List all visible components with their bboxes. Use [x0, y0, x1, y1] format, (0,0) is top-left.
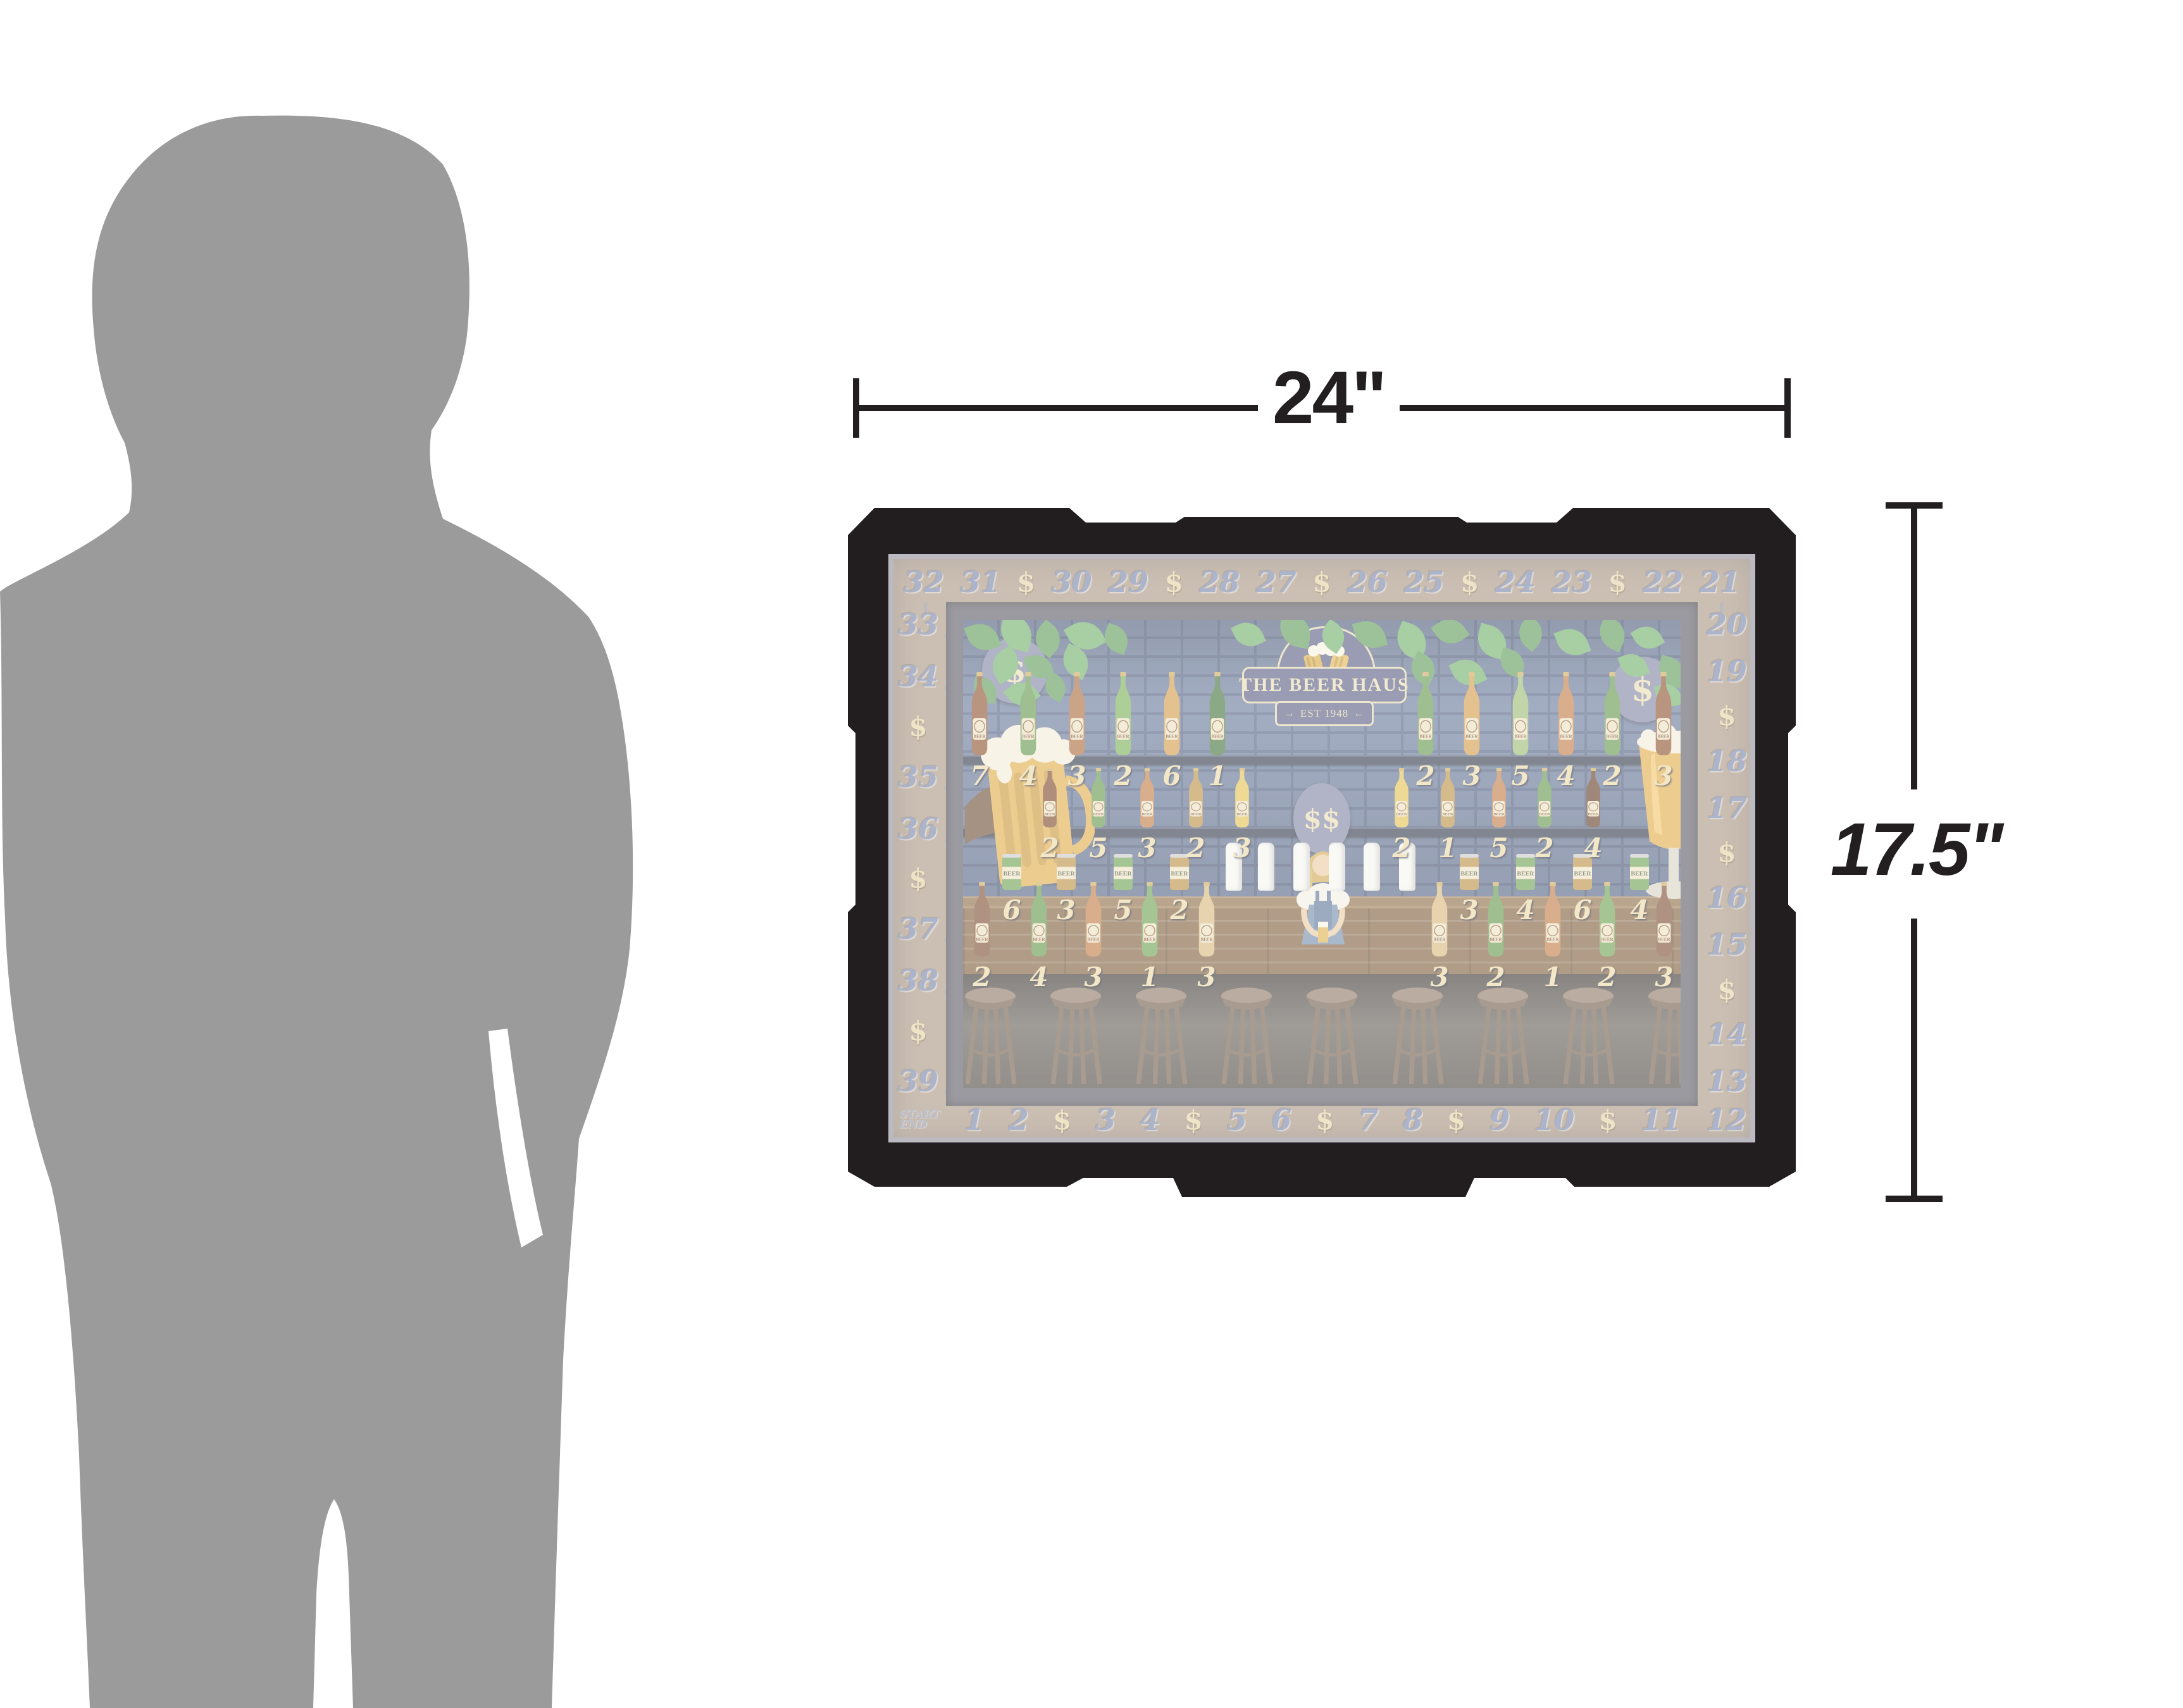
inner-bezel: $ $ $$ ♕ [946, 602, 1698, 1106]
track-right: 2019$1817$1615$1413 [1700, 607, 1754, 1098]
beer-count-number: 3 [1189, 962, 1224, 993]
beer-count-number: 5 [1481, 832, 1517, 863]
track-number-space: 21 [1700, 565, 1740, 599]
track-number-space: 33 [898, 607, 938, 641]
beer-bottle: BEER [1017, 672, 1039, 755]
beer-count-number: 1 [1430, 832, 1465, 863]
svg-text:BEER: BEER [1490, 938, 1502, 943]
beer-can: BEER [999, 854, 1024, 891]
beer-bottle: BEER [1510, 672, 1531, 755]
svg-text:BEER: BEER [1493, 813, 1505, 817]
track-number-space: 20 [1707, 607, 1747, 641]
track-number-space: 5 [1227, 1103, 1247, 1137]
dim-tick-bottom [1886, 1196, 1943, 1202]
white-beer-glass [1258, 843, 1274, 891]
track-number-space: 13 [1707, 1064, 1747, 1098]
beer-bottle: BEER [1485, 882, 1507, 956]
track-number-space: 28 [1199, 565, 1240, 599]
beer-count-number: 4 [1622, 894, 1657, 925]
svg-text:BEER: BEER [1114, 870, 1132, 877]
beer-count-number: 2 [1478, 962, 1514, 993]
arrow-right-icon: → [1284, 707, 1295, 720]
beer-bottle: BEER [1555, 672, 1577, 755]
svg-text:BEER: BEER [1143, 938, 1156, 943]
sign-title-band: THE BEER HAUS [1242, 667, 1407, 703]
beer-count-number: 7 [963, 760, 997, 791]
track-number-space: 14 [1707, 1017, 1747, 1051]
beer-count-number: 5 [1081, 832, 1116, 863]
svg-text:BEER: BEER [1465, 733, 1478, 739]
dim-line-bottom-segment [1911, 919, 1917, 1199]
beer-bottle: BEER [1161, 672, 1183, 755]
track-number-space: 16 [1707, 881, 1747, 915]
beer-haus-game-board: 3231$3029$2827$2625$2423$2221 STARTEND12… [848, 508, 1796, 1199]
beer-bottle: BEER [1083, 882, 1104, 956]
bar-stool [1639, 986, 1681, 1086]
svg-text:BEER: BEER [1546, 938, 1559, 943]
svg-text:BEER: BEER [973, 733, 986, 739]
beer-count-number: 6 [1154, 760, 1190, 791]
svg-text:BEER: BEER [1141, 813, 1153, 817]
beer-can: BEER [1627, 854, 1652, 891]
beer-count-number: 3 [1646, 760, 1681, 791]
beer-count-number: 2 [1032, 832, 1067, 863]
beer-count-number: 3 [1059, 760, 1095, 791]
track-number-space: 30 [1052, 565, 1092, 599]
svg-text:BEER: BEER [1087, 938, 1100, 943]
svg-text:BEER: BEER [1433, 938, 1446, 943]
beer-count-number: 3 [1452, 894, 1487, 925]
track-left: 3334$3536$3738$39 [891, 607, 945, 1098]
track-number-space: 32 [904, 565, 944, 599]
beer-count-number: 1 [1200, 760, 1235, 791]
svg-text:BEER: BEER [1033, 938, 1045, 943]
svg-text:BEER: BEER [1236, 813, 1248, 817]
track-number-space: 12 [1706, 1103, 1746, 1137]
bar-stool [963, 986, 1024, 1086]
beer-bottle: BEER [1112, 672, 1134, 755]
beer-count-number: 4 [1011, 760, 1046, 791]
track-cash-space: $ [1460, 567, 1479, 598]
svg-text:BEER: BEER [1057, 870, 1075, 877]
beer-count-number: 2 [1178, 832, 1214, 863]
beer-count-number: 3 [1224, 832, 1260, 863]
svg-text:BEER: BEER [1190, 813, 1202, 817]
white-beer-glass [1293, 843, 1310, 891]
svg-text:BEER: BEER [1166, 733, 1178, 739]
track-number-space: 27 [1256, 565, 1297, 599]
beer-bottle: BEER [1233, 768, 1252, 827]
track-top: 3231$3029$2827$2625$2423$2221 [904, 559, 1740, 605]
track-number-space: 11 [1641, 1103, 1682, 1137]
beer-count-number: 5 [1503, 760, 1538, 791]
track-start-end-space: STARTEND [900, 1110, 940, 1130]
dim-tick-right [1784, 378, 1791, 438]
dim-tick-top [1886, 502, 1943, 509]
beer-bottle: BEER [1207, 672, 1228, 755]
svg-text:BEER: BEER [1588, 813, 1599, 817]
track-number-space: 19 [1707, 654, 1747, 688]
beer-bottle: BEER [1066, 672, 1088, 755]
beer-count-number: 5 [1105, 894, 1141, 925]
track-number-space: 22 [1643, 565, 1683, 599]
svg-text:BEER: BEER [1560, 733, 1572, 739]
svg-text:BEER: BEER [1517, 870, 1534, 877]
track-number-space: 23 [1552, 565, 1592, 599]
height-label: 17.5" [1815, 812, 2017, 887]
svg-text:BEER: BEER [1396, 813, 1407, 817]
track-cash-space: $ [1315, 1105, 1334, 1136]
beer-count-number: 6 [994, 894, 1029, 925]
bar-stool [1554, 986, 1622, 1086]
track-number-space: 37 [898, 912, 938, 946]
person-silhouette [0, 0, 823, 1708]
bar-stool [1127, 986, 1195, 1086]
track-number-space: 34 [898, 659, 938, 693]
beer-count-number: 3 [1048, 894, 1084, 925]
beer-count-number: 3 [1129, 832, 1165, 863]
track-cash-space: $ [909, 711, 927, 742]
svg-text:BEER: BEER [1071, 733, 1083, 739]
track-cash-space: $ [1608, 567, 1627, 598]
beer-count-number: 3 [1454, 760, 1490, 791]
track-number-space: 29 [1108, 565, 1148, 599]
beer-count-number: 4 [1021, 962, 1057, 993]
arrow-left-icon: ← [1353, 707, 1365, 720]
svg-text:BEER: BEER [1657, 733, 1670, 739]
bar-stool [1469, 986, 1537, 1086]
svg-text:BEER: BEER [1601, 938, 1614, 943]
track-number-space: 24 [1495, 565, 1536, 599]
track-cash-space: $ [1717, 700, 1736, 731]
svg-text:BEER: BEER [1171, 870, 1188, 877]
track-number-space: 9 [1490, 1103, 1510, 1137]
svg-text:BEER: BEER [1631, 870, 1648, 877]
beer-bottle: BEER [1601, 672, 1623, 755]
beer-count-number: 2 [1595, 760, 1630, 791]
track-number-space: 4 [1140, 1103, 1160, 1137]
track-cash-space: $ [1185, 1105, 1203, 1136]
svg-text:BEER: BEER [1514, 733, 1527, 739]
track-number-space: 18 [1707, 744, 1747, 778]
track-cash-space: $ [909, 863, 927, 894]
beer-count-number: 1 [1535, 962, 1570, 993]
svg-text:BEER: BEER [1200, 938, 1213, 943]
track-cash-space: $ [1165, 567, 1183, 598]
track-cash-space: $ [1312, 567, 1331, 598]
bar-scene: $ $ $$ ♕ [963, 620, 1681, 1088]
svg-text:BEER: BEER [1574, 870, 1591, 877]
track-number-space: 8 [1403, 1103, 1423, 1137]
track-number-space: 10 [1534, 1103, 1574, 1137]
beer-count-number: 3 [1076, 962, 1111, 993]
start-end-label: END [900, 1120, 940, 1130]
dim-line-top-segment [1911, 505, 1917, 789]
svg-text:BEER: BEER [1442, 813, 1453, 817]
svg-text:BEER: BEER [1044, 813, 1055, 817]
beer-count-number: 2 [1527, 832, 1562, 863]
beer-count-number: 4 [1508, 894, 1543, 925]
dim-line-left-segment [855, 405, 1258, 411]
bar-stool [1383, 986, 1452, 1086]
beer-count-number: 4 [1548, 760, 1584, 791]
svg-text:BEER: BEER [1539, 813, 1550, 817]
track-number-space: 6 [1271, 1103, 1291, 1137]
beer-count-number: 2 [1384, 832, 1419, 863]
sign-est-tab: → EST 1948 ← [1275, 701, 1374, 726]
track-cash-space: $ [1717, 974, 1736, 1005]
bar-stool [1298, 986, 1366, 1086]
beer-bottle: BEER [1429, 882, 1450, 956]
bar-stool [1042, 986, 1110, 1086]
beer-bottle: BEER [1415, 672, 1436, 755]
bar-stool [1212, 986, 1281, 1086]
beer-count-number: 1 [1132, 962, 1167, 993]
beer-bottle: BEER [1139, 882, 1160, 956]
beer-count-number: 2 [1162, 894, 1197, 925]
beer-bottle: BEER [1461, 672, 1483, 755]
svg-text:BEER: BEER [976, 938, 988, 943]
track-cash-space: $ [909, 1015, 927, 1046]
track-number-space: 7 [1359, 1103, 1379, 1137]
svg-text:BEER: BEER [1003, 870, 1021, 877]
svg-text:BEER: BEER [1093, 813, 1104, 817]
track-cash-space: $ [1017, 567, 1035, 598]
track-number-space: 25 [1404, 565, 1445, 599]
track-cash-space: $ [1598, 1105, 1617, 1136]
beer-bottle: BEER [969, 672, 990, 755]
track-number-space: 38 [898, 963, 938, 998]
beer-count-number: 4 [1576, 832, 1611, 863]
beer-bottle: BEER [971, 882, 993, 956]
sign-established: EST 1948 [1300, 707, 1348, 720]
track-number-space: 1 [964, 1103, 985, 1137]
beer-count-number: 2 [1408, 760, 1443, 791]
track-number-space: 36 [898, 812, 938, 846]
svg-text:BEER: BEER [1211, 733, 1224, 739]
svg-text:BEER: BEER [1117, 733, 1129, 739]
svg-text:BEER: BEER [1460, 870, 1478, 877]
white-beer-glass [1364, 843, 1380, 891]
track-cash-space: $ [1447, 1105, 1465, 1136]
beer-count-number: 3 [1422, 962, 1457, 993]
beer-bottle: BEER [1542, 882, 1564, 956]
beer-count-number: 3 [1646, 962, 1681, 993]
track-number-space: 2 [1009, 1103, 1029, 1137]
beer-bottle: BEER [1653, 672, 1674, 755]
track-number-space: 15 [1707, 927, 1747, 962]
track-cash-space: $ [1053, 1105, 1071, 1136]
beer-count-number: 2 [1105, 760, 1141, 791]
svg-text:BEER: BEER [1658, 938, 1670, 943]
board-window: 3231$3029$2827$2625$2423$2221 STARTEND12… [888, 554, 1755, 1142]
beer-count-number: 2 [964, 962, 1000, 993]
width-label: 24" [1258, 361, 1400, 435]
beer-count-number: 6 [1565, 894, 1600, 925]
dim-tick-left [853, 378, 859, 438]
track-number-space: 26 [1347, 565, 1388, 599]
beer-bottle: BEER [1028, 882, 1050, 956]
dim-line-right-segment [1400, 405, 1789, 411]
beer-count-number: 2 [1589, 962, 1625, 993]
track-number-space: 17 [1707, 791, 1747, 825]
track-number-space: 39 [898, 1064, 938, 1098]
svg-text:BEER: BEER [1419, 733, 1432, 739]
track-number-space: 3 [1095, 1103, 1116, 1137]
white-beer-glass [1329, 843, 1345, 891]
sign-title: THE BEER HAUS [1239, 674, 1409, 696]
track-number-space: 31 [960, 565, 1000, 599]
beer-bottle: BEER [1196, 882, 1217, 956]
track-cash-space: $ [1717, 837, 1736, 868]
svg-text:BEER: BEER [1606, 733, 1619, 739]
double-dollar-sign: $$ [1303, 803, 1340, 834]
track-number-space: 35 [898, 760, 938, 794]
svg-text:BEER: BEER [1022, 733, 1035, 739]
